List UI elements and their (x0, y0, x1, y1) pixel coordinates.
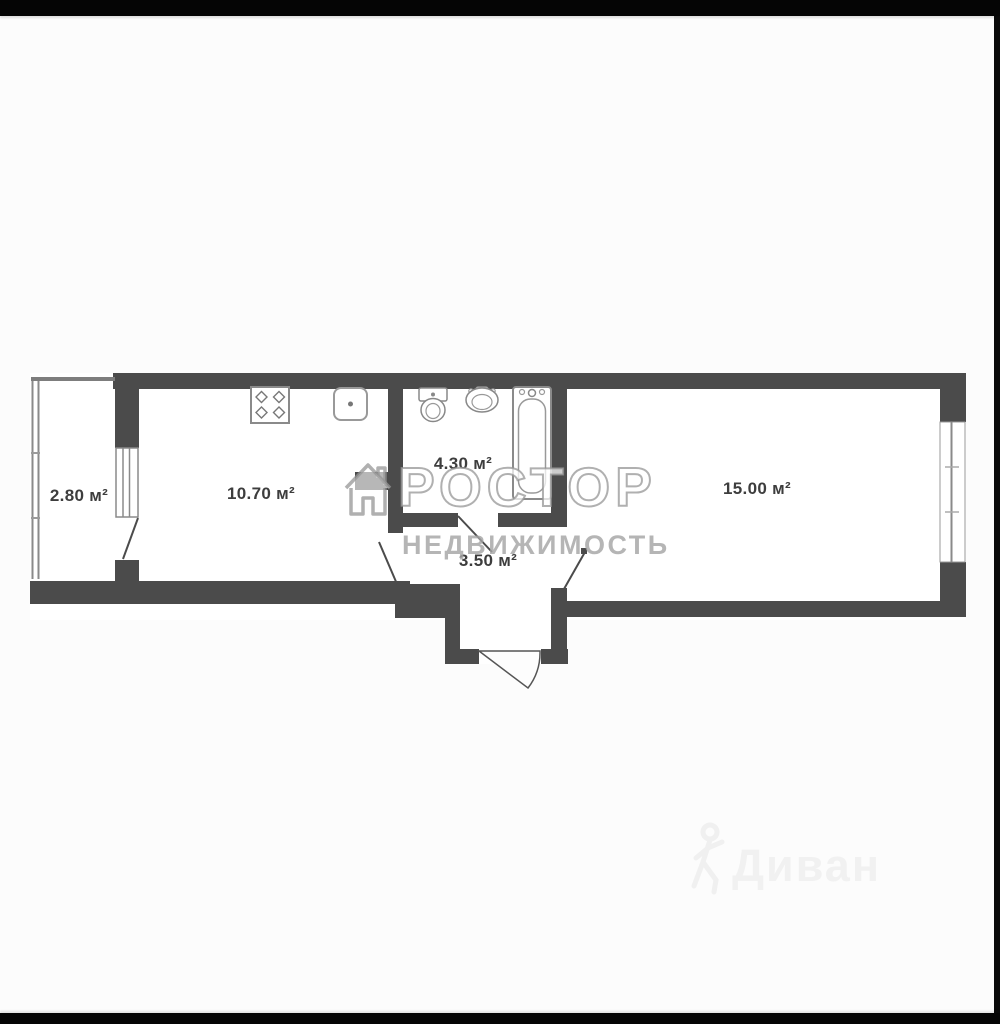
wall-right-lower (940, 562, 966, 617)
watermark-agency: РОСТОР (344, 460, 657, 523)
photo-right-edge (994, 0, 1000, 1024)
room-area-label-living-room: 15.00 м² (723, 479, 791, 499)
room-area-label-balcony: 2.80 м² (50, 486, 108, 506)
watermark-agency-name: РОСТОР (398, 460, 657, 515)
stove-icon (251, 387, 289, 423)
wall-bottom-left (30, 581, 410, 604)
letterbox-top (0, 0, 1000, 16)
wall-entry-bottom-left (445, 649, 479, 664)
kitchen-sink-icon (334, 388, 367, 420)
entrance-door-leaf (479, 651, 540, 688)
room-area-label-kitchen: 10.70 м² (227, 484, 295, 504)
wall-entry-bottom-right (541, 649, 568, 664)
washbasin-icon (466, 387, 498, 412)
wall-balcony-top-thin (31, 377, 115, 381)
wall-right-upper (940, 373, 966, 422)
letterbox-bottom (0, 1013, 1000, 1024)
toilet-icon (419, 388, 447, 422)
wall-balcony-kitchen-upper (115, 373, 139, 448)
house-icon (344, 460, 392, 523)
wall-bottom-living (551, 601, 966, 617)
watermark-agency-subtitle: НЕДВИЖИМОСТЬ (402, 530, 670, 561)
living-room-window (940, 422, 965, 562)
